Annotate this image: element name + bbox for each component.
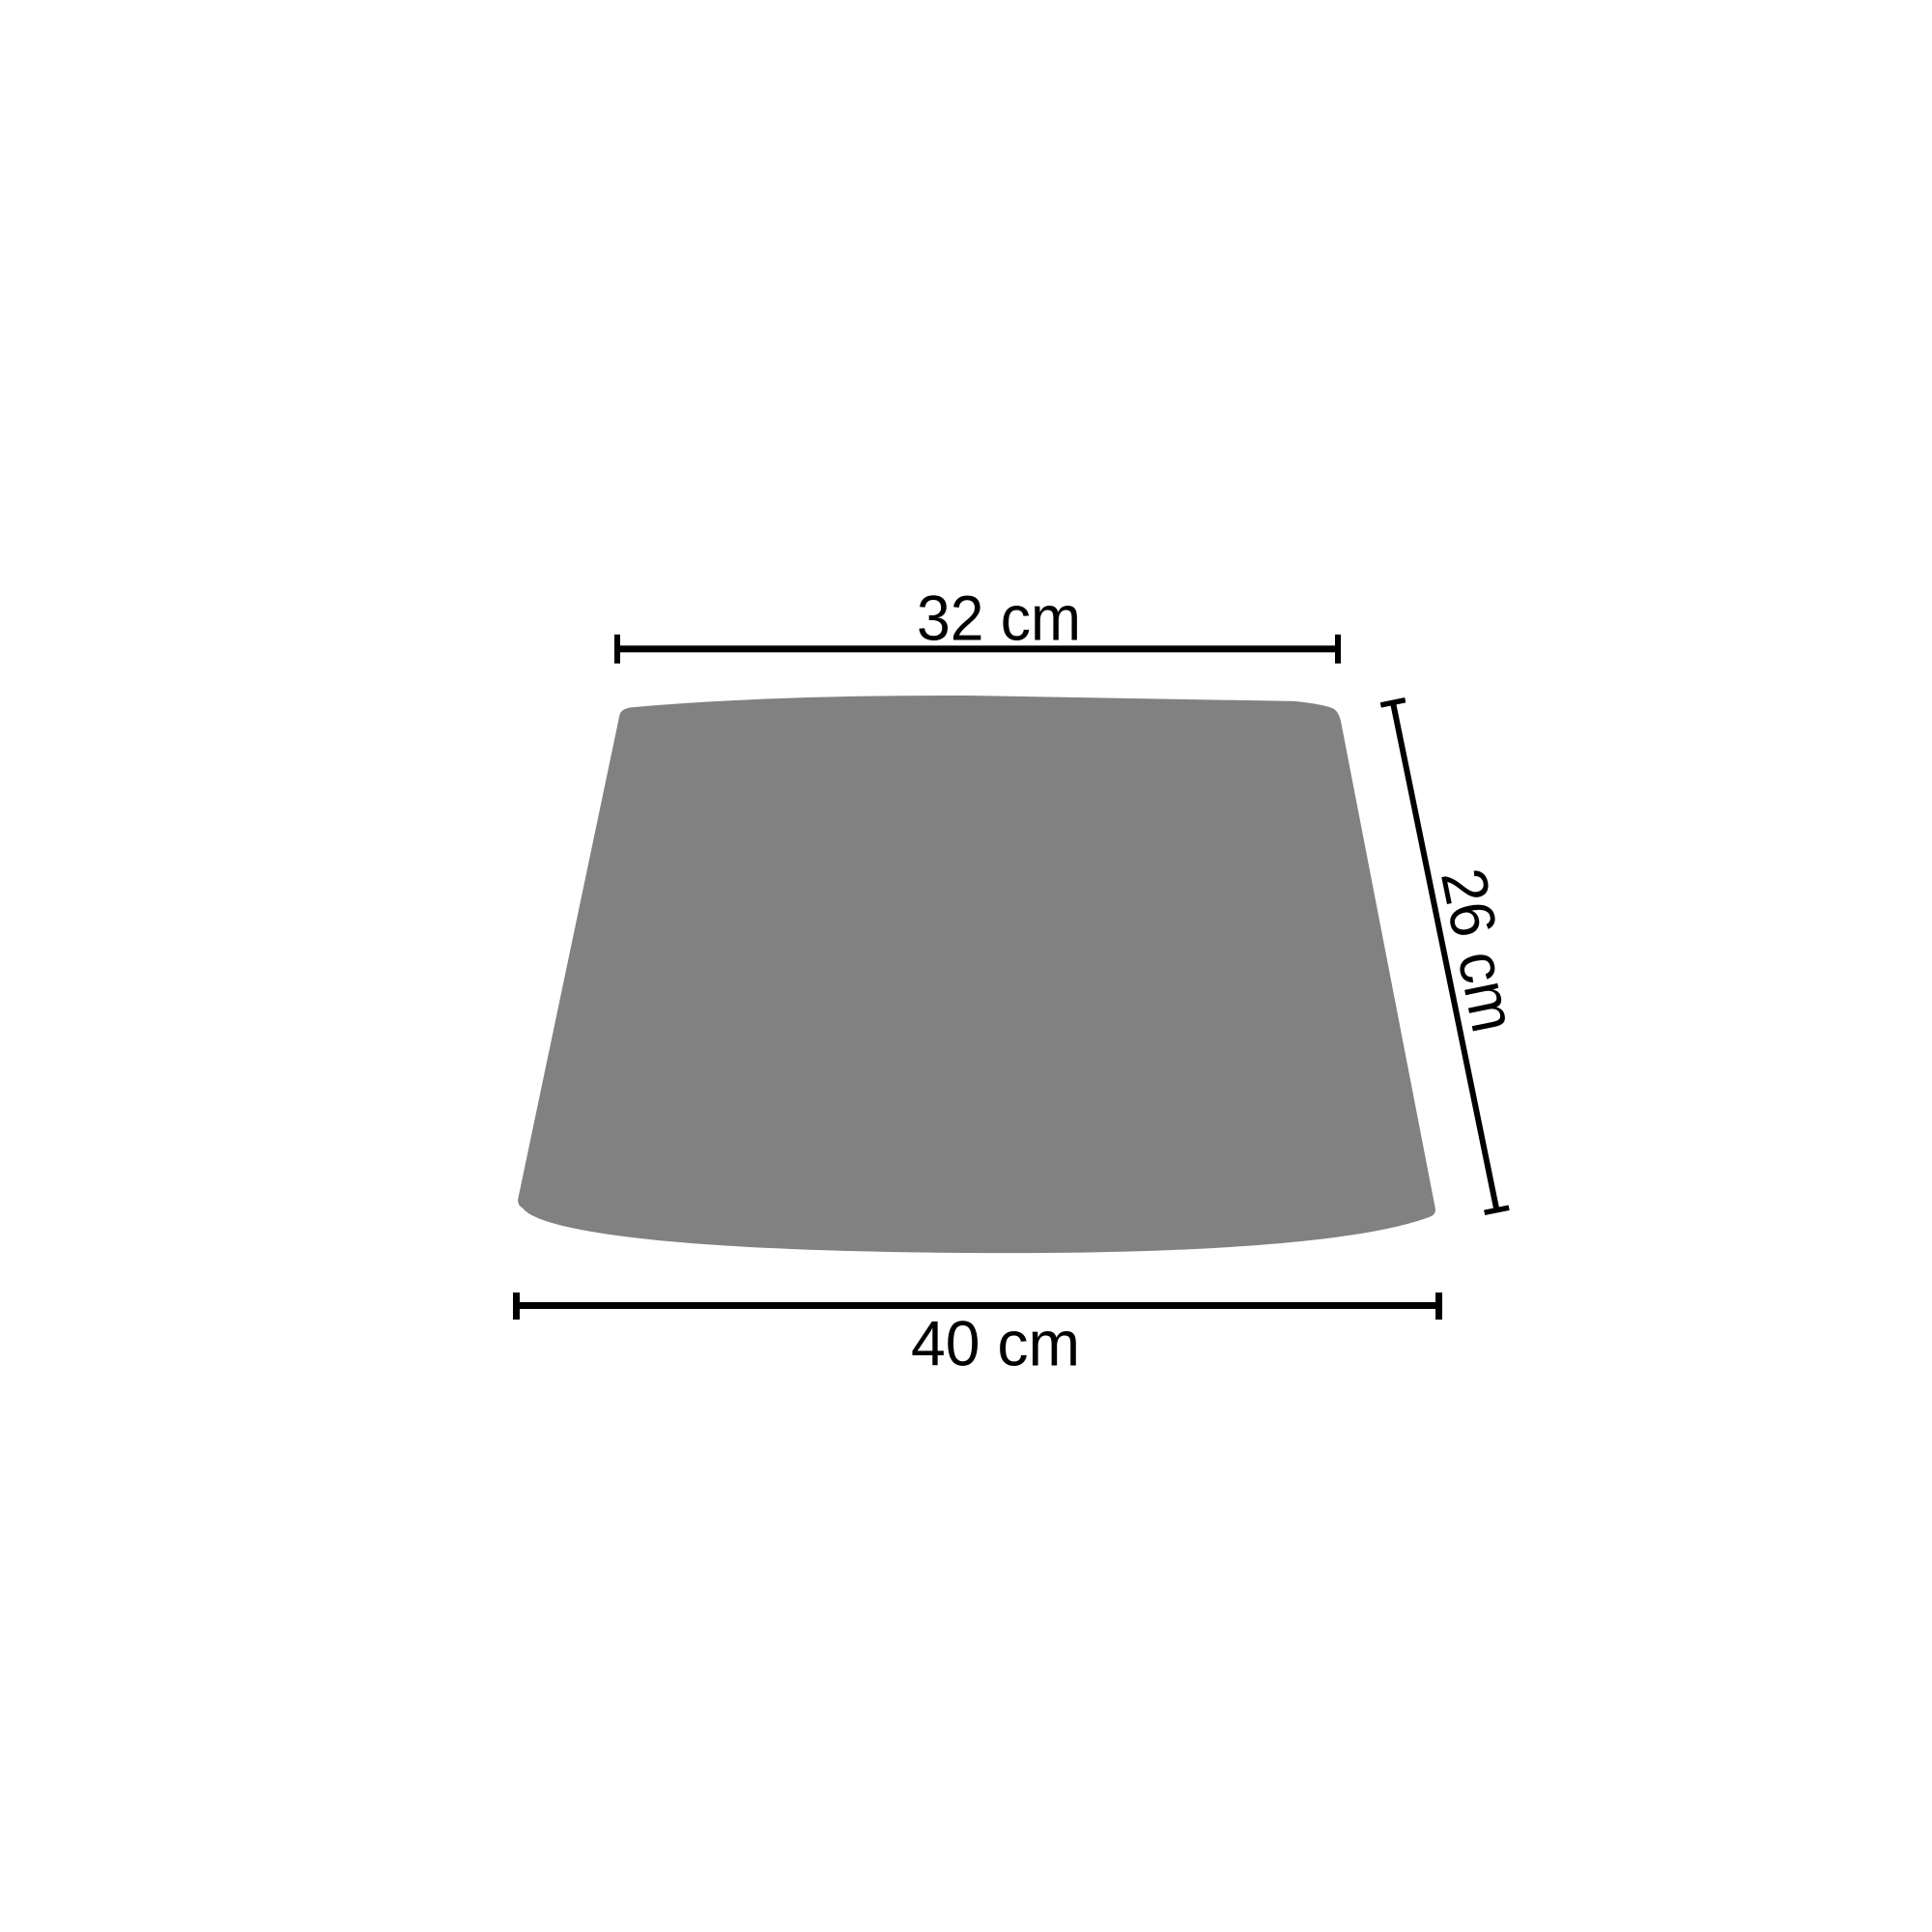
svg-text:40 cm: 40 cm: [911, 1308, 1080, 1379]
svg-text:32 cm: 32 cm: [917, 582, 1081, 654]
